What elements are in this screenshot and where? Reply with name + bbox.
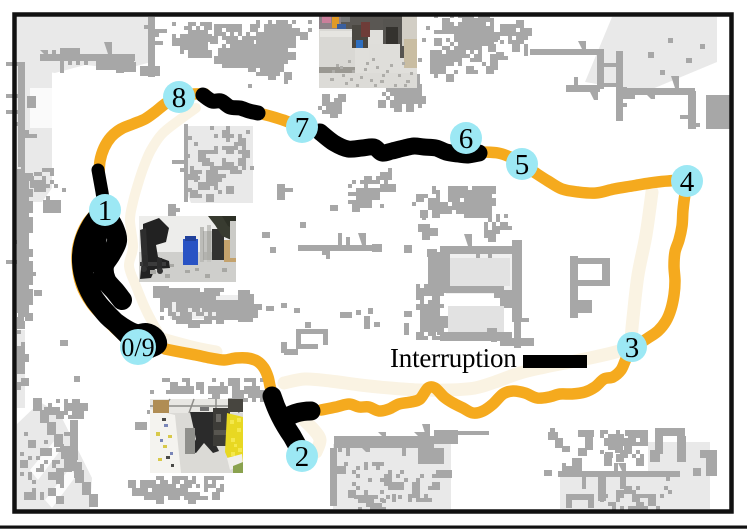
- svg-text:4: 4: [680, 166, 695, 198]
- svg-text:7: 7: [295, 112, 310, 144]
- svg-text:3: 3: [625, 332, 640, 364]
- svg-text:2: 2: [295, 441, 310, 473]
- svg-text:5: 5: [515, 149, 530, 181]
- svg-text:6: 6: [459, 123, 474, 155]
- svg-text:1: 1: [98, 195, 113, 227]
- svg-text:0/9: 0/9: [121, 333, 154, 362]
- svg-text:Interruption: Interruption: [390, 343, 517, 373]
- svg-text:8: 8: [172, 82, 187, 114]
